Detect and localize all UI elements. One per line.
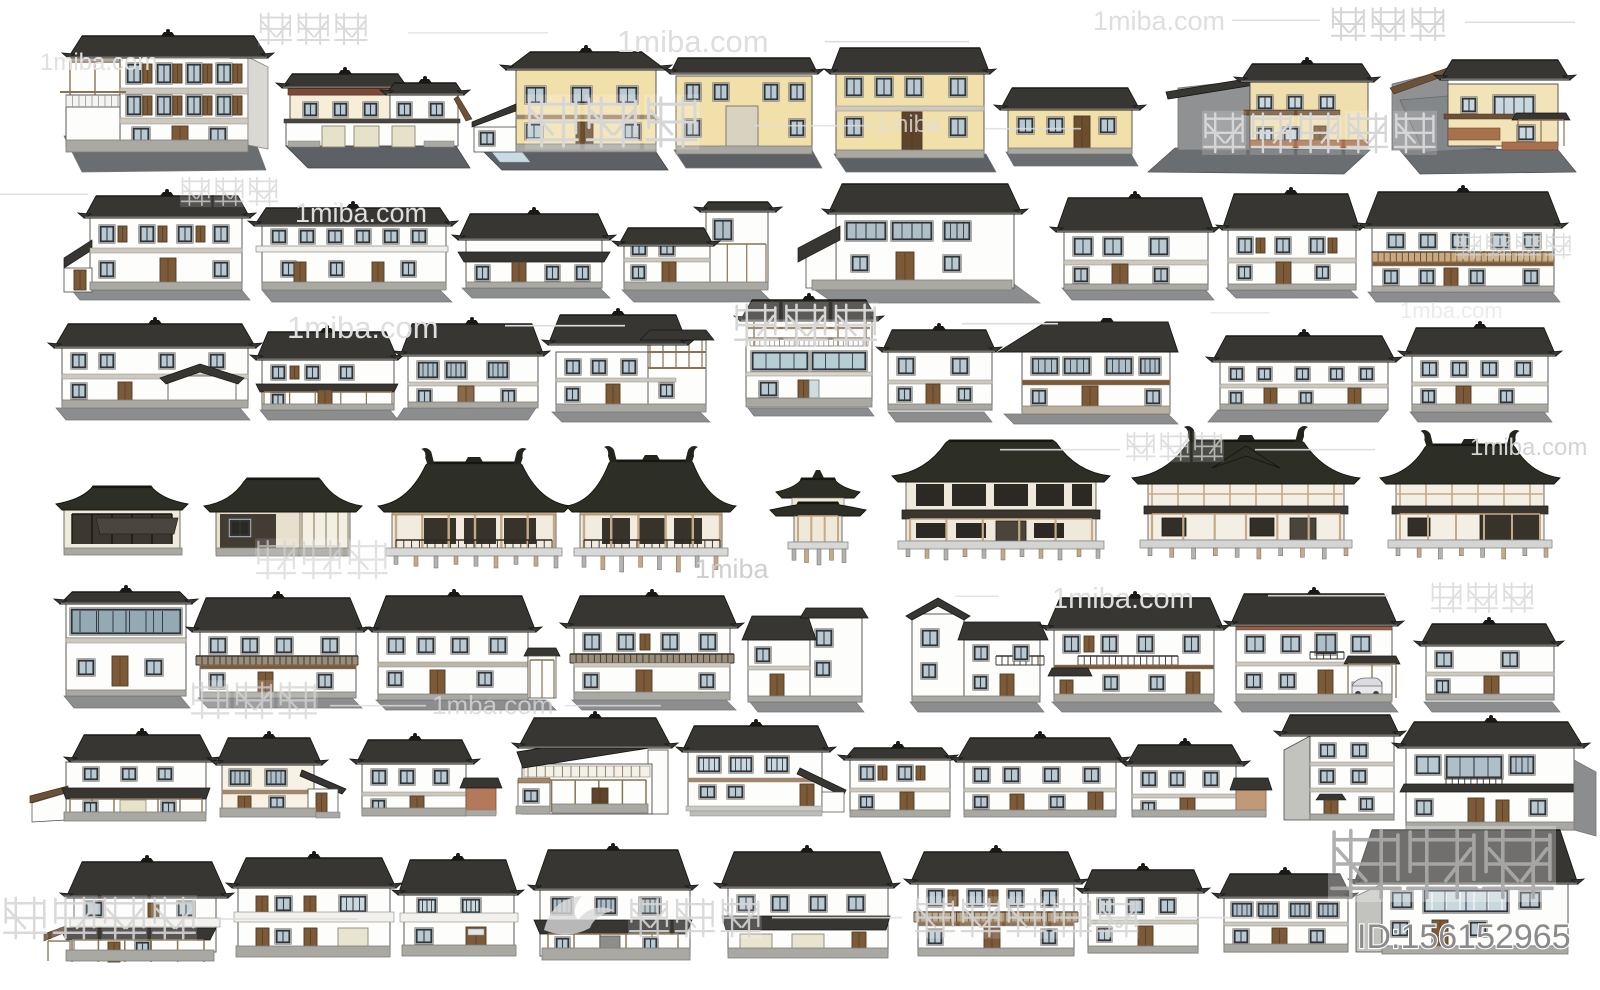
svg-text:—————: ————— [1465,8,1575,33]
svg-text:1miba.com: 1miba.com [287,310,439,345]
svg-text:——————: —————— [825,27,969,54]
svg-text:—————: ————— [1255,435,1375,462]
svg-text:————: ———— [1232,6,1320,31]
svg-text:—————: ————— [1000,435,1120,462]
svg-text:———: ——— [1210,301,1270,323]
svg-text:1miba.com: 1miba.com [40,49,157,76]
svg-text:—————: ————— [505,311,625,338]
svg-text:—————: ————— [1268,581,1388,608]
svg-text:————: ———— [0,180,88,205]
svg-text:1miba.com: 1miba.com [617,24,769,59]
svg-text:1miba.com: 1miba.com [1470,434,1587,461]
svg-text:————: ———— [1155,900,1259,930]
svg-text:1miba: 1miba [695,554,770,584]
svg-text:——: —— [955,582,999,607]
svg-text:1miba.com: 1miba.com [295,198,427,228]
svg-text:———————: ——————— [408,21,548,43]
svg-text:————: ———— [565,691,661,718]
svg-text:————: ———— [962,309,1058,336]
svg-text:—————1miba: —————1miba [755,111,941,138]
svg-text:1miba.com: 1miba.com [1093,6,1225,36]
svg-text:1miba.com: 1miba.com [1052,583,1194,615]
svg-text:1mba.com: 1mba.com [1400,298,1503,323]
svg-text:—————: ————— [772,900,902,930]
svg-text:————: ———— [985,114,1081,141]
svg-text:—————: ————— [218,901,358,932]
svg-text:ID:156152965: ID:156152965 [1357,918,1571,956]
svg-text:1mba.com: 1mba.com [432,690,553,720]
svg-text:————: ———— [330,691,426,718]
svg-text:————: ———— [150,47,230,69]
